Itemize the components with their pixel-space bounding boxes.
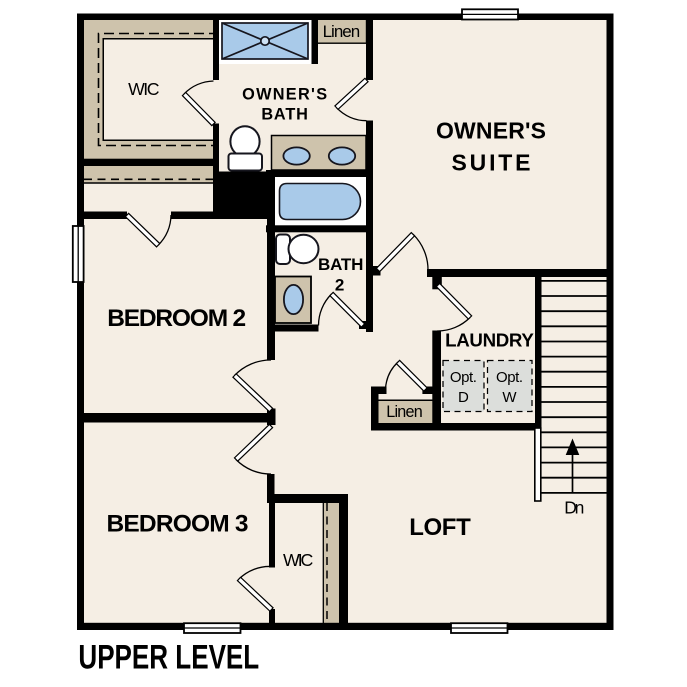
svg-text:WIC: WIC <box>128 79 160 99</box>
svg-text:UPPER LEVEL: UPPER LEVEL <box>78 639 259 677</box>
svg-text:Opt.: Opt. <box>450 369 477 386</box>
svg-text:BATH: BATH <box>318 255 363 274</box>
svg-text:LAUNDRY: LAUNDRY <box>445 329 534 350</box>
svg-text:Opt.: Opt. <box>496 369 523 386</box>
svg-text:Linen: Linen <box>323 22 361 41</box>
svg-text:LOFT: LOFT <box>409 514 471 541</box>
svg-text:D: D <box>458 389 469 406</box>
svg-text:Dn: Dn <box>564 497 584 517</box>
svg-text:BEDROOM 2: BEDROOM 2 <box>107 305 246 332</box>
svg-text:2: 2 <box>335 275 344 294</box>
svg-text:BATH: BATH <box>261 105 308 123</box>
svg-text:SUITE: SUITE <box>452 150 531 176</box>
svg-text:W: W <box>502 389 517 406</box>
svg-text:OWNER'S: OWNER'S <box>436 118 546 144</box>
svg-text:Linen: Linen <box>386 403 423 421</box>
svg-text:BEDROOM 3: BEDROOM 3 <box>107 511 249 538</box>
svg-text:WIC: WIC <box>283 550 314 570</box>
